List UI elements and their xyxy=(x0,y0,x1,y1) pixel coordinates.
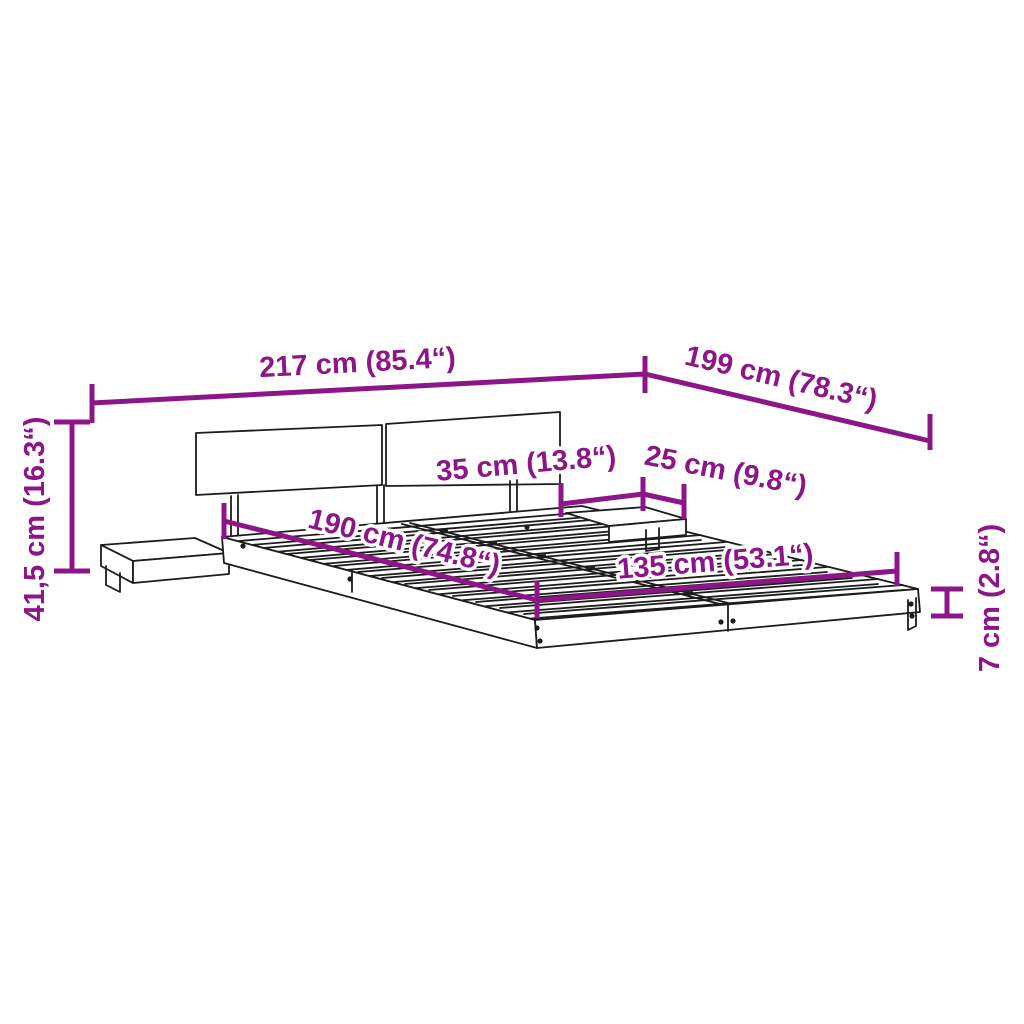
diagram-canvas: 217 cm (85.4“) 199 cm (78.3“) 41,5 cm (1… xyxy=(0,0,1024,1024)
dimension-total-depth: 199 cm (78.3“) xyxy=(645,340,930,450)
dimension-shelf-depth-label: 25 cm (9.8“) xyxy=(642,440,810,503)
dimension-headboard-height: 41,5 cm (16.3“) xyxy=(19,417,90,622)
dimension-shelf-depth: 25 cm (9.8“) xyxy=(642,440,810,519)
dimension-diagram: 217 cm (85.4“) 199 cm (78.3“) 41,5 cm (1… xyxy=(0,0,1024,1024)
headboard-left-panel xyxy=(196,425,382,495)
dimension-frame-height-label: 7 cm (2.8“) xyxy=(974,524,1006,672)
dimension-frame-height: 7 cm (2.8“) xyxy=(931,524,1006,672)
dimension-total-width: 217 cm (85.4“) xyxy=(92,342,645,423)
dimension-headboard-height-label: 41,5 cm (16.3“) xyxy=(19,417,51,622)
dimension-total-width-label: 217 cm (85.4“) xyxy=(258,342,456,384)
